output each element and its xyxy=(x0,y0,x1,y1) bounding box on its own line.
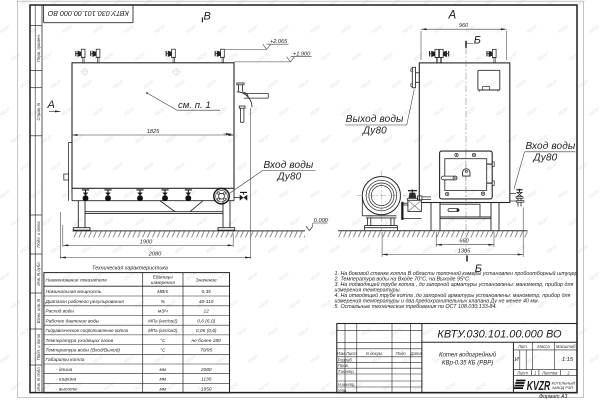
svg-text:- длина: - длина xyxy=(56,367,73,373)
svg-text:12: 12 xyxy=(204,309,210,315)
svg-text:Наименование показателя: Наименование показателя xyxy=(46,278,108,284)
svg-text:МПа (кгс/см2): МПа (кгс/см2) xyxy=(148,318,178,323)
svg-text:5. Остальные технические треб: 5. Остальные технические требования по О… xyxy=(335,304,497,310)
svg-text:Взам. инв. N: Взам. инв. N xyxy=(36,298,41,323)
svg-text:мм: мм xyxy=(160,368,167,373)
svg-text:Разраб.: Разраб. xyxy=(338,357,353,362)
svg-text:40-110: 40-110 xyxy=(199,299,214,305)
svg-text:Инв. N дубл.: Инв. N дубл. xyxy=(36,261,41,285)
svg-text:А: А xyxy=(47,99,55,111)
svg-text:Лит.: Лит. xyxy=(517,344,528,349)
svg-text:1130: 1130 xyxy=(201,377,212,383)
svg-text:- высота: - высота xyxy=(56,387,77,392)
svg-text:см. п. 1: см. п. 1 xyxy=(178,100,211,111)
svg-text:1825: 1825 xyxy=(147,129,160,135)
svg-text:Подп. и дата: Подп. и дата xyxy=(36,333,41,360)
svg-text:2080: 2080 xyxy=(200,367,212,373)
svg-text:Утв.: Утв. xyxy=(338,388,348,393)
svg-text:Подп.: Подп. xyxy=(396,351,407,356)
svg-text:1950: 1950 xyxy=(201,386,212,392)
svg-text:МВт: МВт xyxy=(157,289,168,295)
svg-text:Лист: Лист xyxy=(516,370,528,375)
svg-text:КОТЕЛЬНЫЙ: КОТЕЛЬНЫЙ xyxy=(552,381,576,385)
svg-text:Ду80: Ду80 xyxy=(277,171,302,182)
svg-text:1:15: 1:15 xyxy=(562,357,574,363)
svg-text:Гидравлическое сопротивление к: Гидравлическое сопротивление котла xyxy=(46,328,129,333)
svg-text:Значение: Значение xyxy=(196,278,217,284)
svg-text:измерения: измерения xyxy=(151,281,175,286)
svg-text:2080: 2080 xyxy=(148,252,162,258)
svg-text:Рабочее давление воды: Рабочее давление воды xyxy=(46,318,100,324)
svg-text:КВТУ.030.101.00.000 ВО: КВТУ.030.101.00.000 ВО xyxy=(47,9,129,18)
svg-text:Вход воды: Вход воды xyxy=(526,141,576,152)
svg-text:N докум.: N докум. xyxy=(366,351,383,356)
svg-text:Диапазон рабочего регулировани: Диапазон рабочего регулирования xyxy=(45,299,125,305)
svg-text:70/95: 70/95 xyxy=(200,348,212,354)
svg-text:мм: мм xyxy=(160,378,167,383)
svg-text:1900: 1900 xyxy=(140,240,153,246)
svg-text:Температура уходящих газов: Температура уходящих газов xyxy=(46,338,114,344)
svg-text:Перв. примен.: Перв. примен. xyxy=(36,34,41,62)
svg-text:Расход воды: Расход воды xyxy=(46,309,75,315)
svg-text:не более 280: не более 280 xyxy=(192,338,222,344)
svg-text:Н.контр.: Н.контр. xyxy=(338,382,356,387)
svg-text:Температура воды (Вход/Выход): Температура воды (Вход/Выход) xyxy=(46,348,121,354)
svg-text:Дата: Дата xyxy=(410,351,423,356)
svg-text:660: 660 xyxy=(459,239,469,245)
svg-text:Справ. N: Справ. N xyxy=(36,102,41,120)
svg-text:Листов: Листов xyxy=(541,370,558,375)
svg-text:0,6 (6,0): 0,6 (6,0) xyxy=(197,318,215,324)
svg-text:- ширина: - ширина xyxy=(56,378,77,383)
svg-text:+1.900: +1.900 xyxy=(293,52,311,58)
svg-text:Единицы: Единицы xyxy=(153,275,174,281)
svg-text:Б: Б xyxy=(474,35,481,47)
svg-text:1305: 1305 xyxy=(458,249,471,255)
svg-text:Техническая характеристика: Техническая характеристика xyxy=(92,266,168,272)
svg-text:Инв. N подл.: Инв. N подл. xyxy=(36,366,41,390)
svg-text:Ду80: Ду80 xyxy=(362,126,387,137)
svg-text:°С: °С xyxy=(160,348,166,354)
svg-text:0,35: 0,35 xyxy=(202,289,212,295)
svg-text:ЗАВОД РЭП: ЗАВОД РЭП xyxy=(552,386,573,390)
svg-text:Масштаб: Масштаб xyxy=(556,344,576,349)
svg-text:%: % xyxy=(161,299,166,305)
svg-text:Габариты котла: Габариты котла xyxy=(46,357,85,363)
svg-text:Номинальная мощность: Номинальная мощность xyxy=(46,289,103,295)
svg-text:+2.065: +2.065 xyxy=(270,39,288,45)
svg-text:Выход воды: Выход воды xyxy=(346,114,404,125)
svg-text:960: 960 xyxy=(459,23,469,29)
svg-text:°С: °С xyxy=(160,338,166,344)
svg-text:Изм.Лист: Изм.Лист xyxy=(337,351,357,356)
svg-text:МПа (кгс/см2): МПа (кгс/см2) xyxy=(148,328,178,333)
svg-text:м3/ч: м3/ч xyxy=(158,309,168,315)
svg-text:Подп. и дата: Подп. и дата xyxy=(36,221,41,248)
svg-text:Пров.: Пров. xyxy=(338,363,349,368)
svg-text:KVZR: KVZR xyxy=(527,379,551,393)
svg-text:Вход воды: Вход воды xyxy=(264,160,314,171)
svg-text:Ду80: Ду80 xyxy=(533,153,558,164)
svg-text:0,06 (0,6): 0,06 (0,6) xyxy=(196,328,217,334)
svg-text:А: А xyxy=(448,10,457,22)
svg-text:В: В xyxy=(204,11,211,23)
svg-text:КВр-0,35 КБ (РВР): КВр-0,35 КБ (РВР) xyxy=(442,361,493,367)
svg-text:мм: мм xyxy=(160,387,167,392)
svg-text:1: 1 xyxy=(534,370,536,375)
svg-text:Т.контр.: Т.контр. xyxy=(338,369,355,374)
svg-text:Масса: Масса xyxy=(537,344,550,349)
svg-text:КВТУ.030.101.00.000 ВО: КВТУ.030.101.00.000 ВО xyxy=(437,328,562,340)
svg-text:Котел водогрейный: Котел водогрейный xyxy=(439,351,497,358)
svg-text:Формат А3: Формат А3 xyxy=(539,394,567,400)
